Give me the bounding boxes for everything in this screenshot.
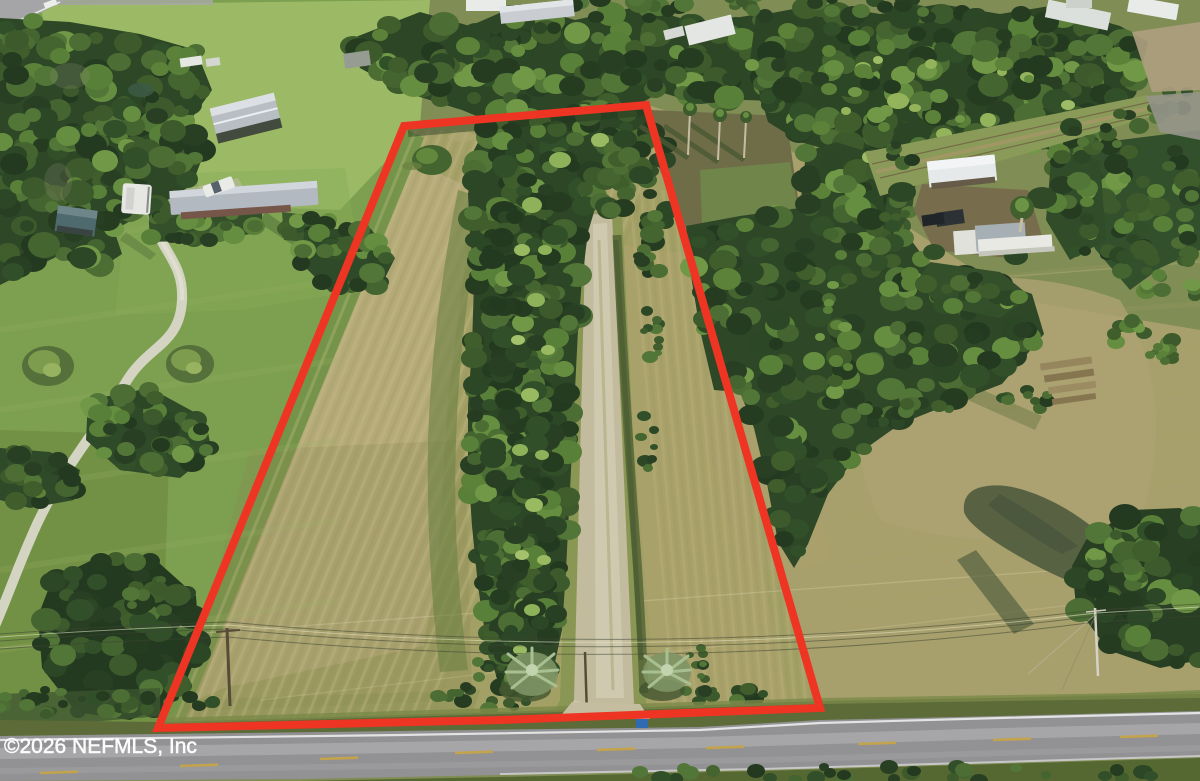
svg-text:©2026 NEFMLS, Inc: ©2026 NEFMLS, Inc bbox=[4, 735, 197, 758]
